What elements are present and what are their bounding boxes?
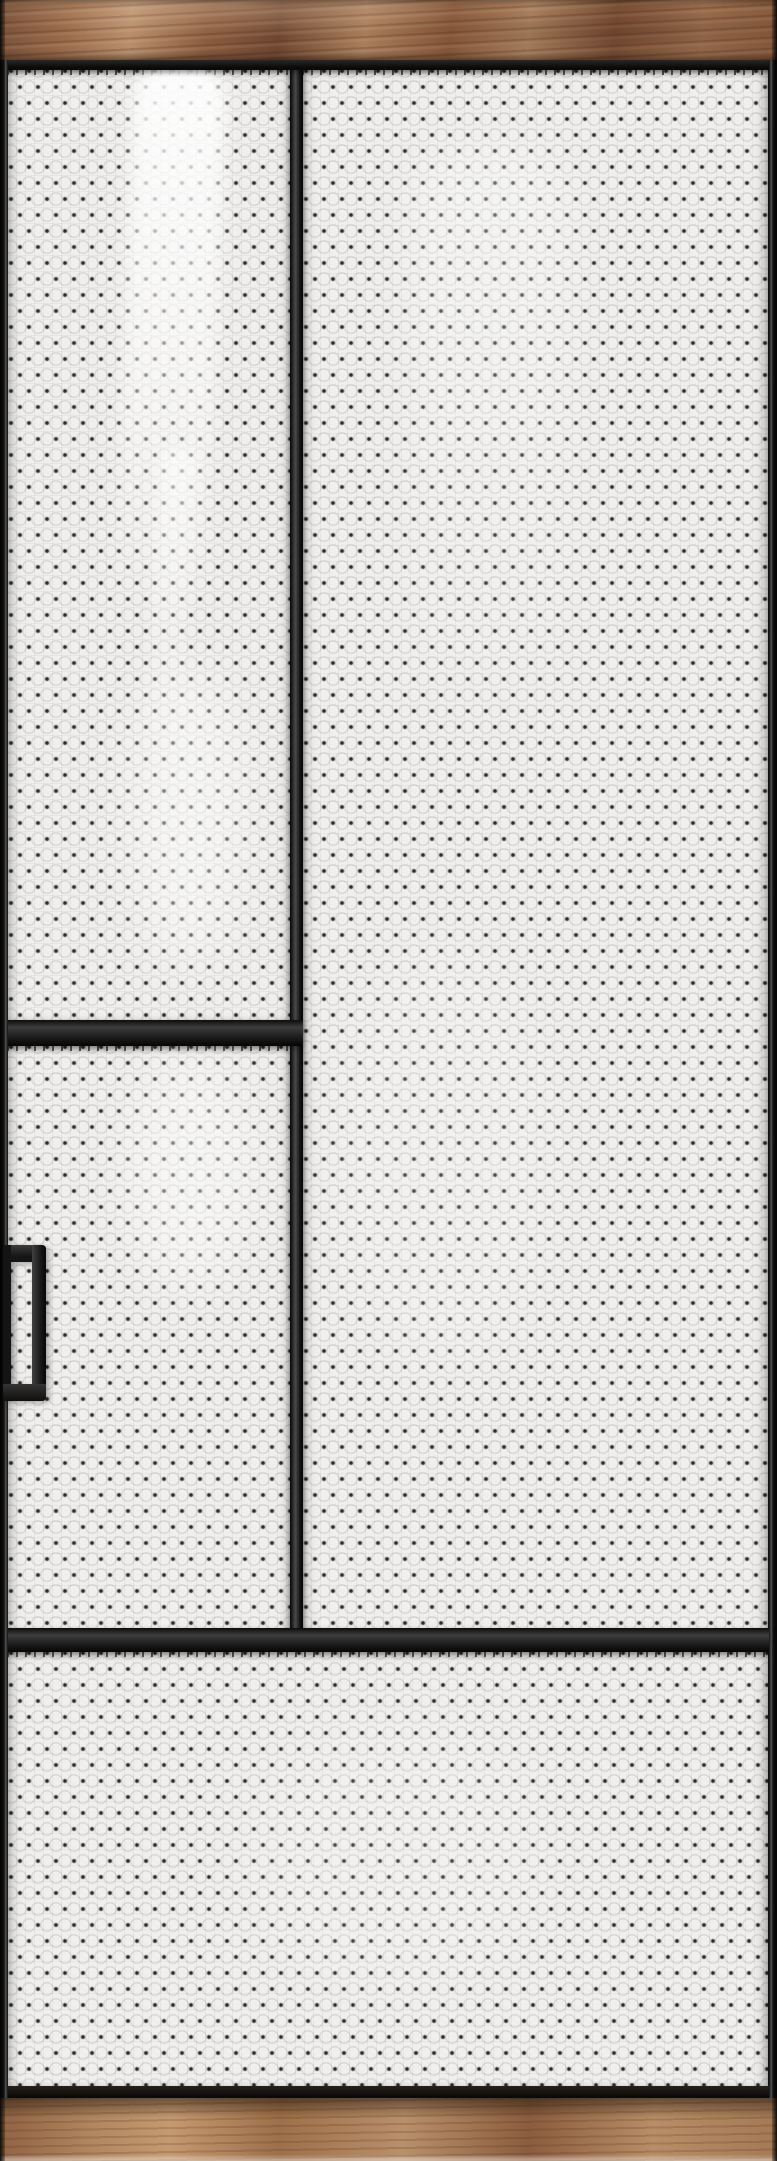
- wood-base-sill: [0, 2098, 777, 2161]
- middle-rail: [3, 1628, 774, 1652]
- left-divider-rail: [3, 1020, 303, 1046]
- glass-panel-upper-left: [7, 66, 292, 1024]
- glass-reflection-streak: [115, 66, 226, 617]
- glass-panel-mid-left: [7, 1042, 292, 1634]
- wood-transom: [0, 0, 777, 60]
- door-pull-handle: [3, 1245, 46, 1401]
- vertical-mullion: [290, 56, 303, 1638]
- handle-bottom-arm: [3, 1384, 46, 1401]
- glass-reflection-streak: [410, 146, 570, 766]
- right-outer-edge: [772, 0, 777, 2161]
- handle-grip-bar: [32, 1245, 46, 1401]
- door-photo: [0, 0, 777, 2161]
- glass-reflection-blob: [133, 666, 243, 966]
- glass-reflection-blob: [247, 1728, 547, 1988]
- glass-panel-bottom: [7, 1648, 768, 2090]
- glass-panel-right: [302, 66, 768, 1634]
- glass-reflection-blob: [332, 946, 552, 1366]
- left-outer-edge: [0, 0, 5, 2161]
- glass-reflection-blob: [125, 1058, 255, 1288]
- handle-mount-bar: [3, 1245, 11, 1401]
- glass-reflection-streak: [145, 445, 197, 746]
